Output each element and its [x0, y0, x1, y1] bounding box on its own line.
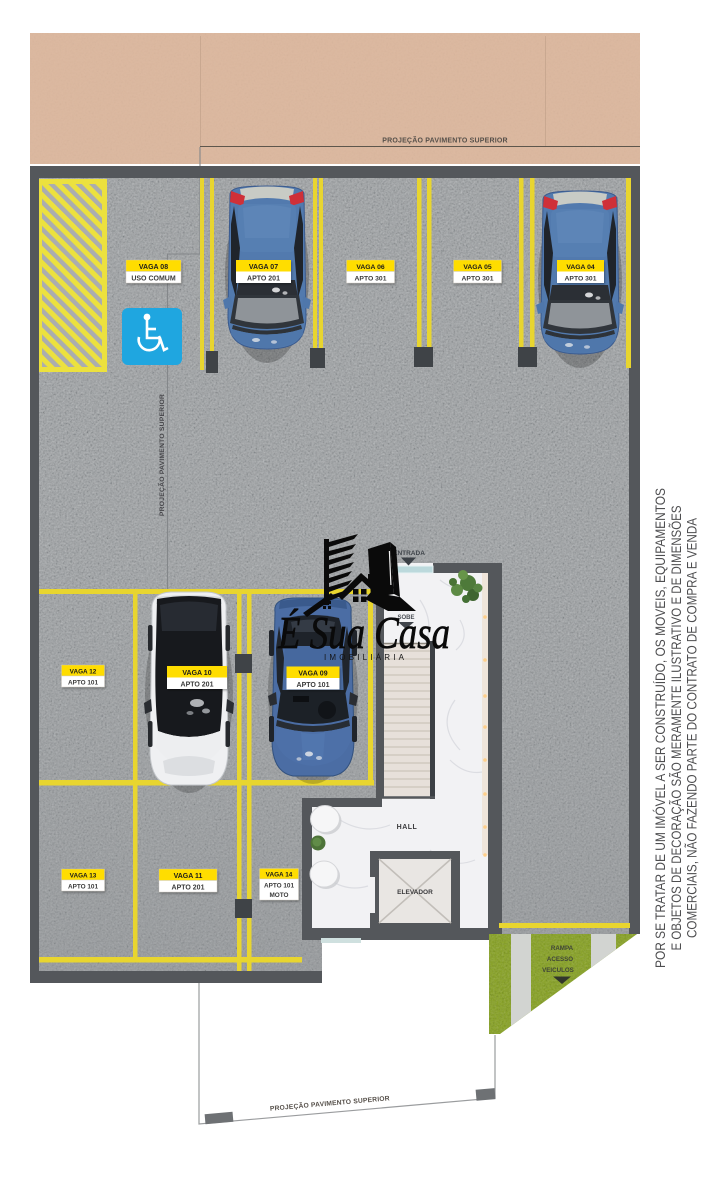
svg-text:VAGA 10: VAGA 10 — [182, 670, 211, 677]
svg-text:PROJEÇÃO PAVIMENTO SUPERIOR: PROJEÇÃO PAVIMENTO SUPERIOR — [157, 394, 166, 516]
svg-text:POR SE TRATAR DE UM IMÓVEL A S: POR SE TRATAR DE UM IMÓVEL A SER CONSTRU… — [652, 488, 668, 968]
svg-text:APTO 301: APTO 301 — [355, 275, 387, 282]
svg-text:APTO 301: APTO 301 — [462, 275, 494, 282]
svg-text:PROJEÇÃO PAVIMENTO SUPERIOR: PROJEÇÃO PAVIMENTO SUPERIOR — [382, 136, 508, 145]
svg-text:APTO 101: APTO 101 — [68, 680, 99, 687]
svg-text:VAGA 09: VAGA 09 — [298, 670, 327, 677]
svg-text:VAGA 13: VAGA 13 — [70, 873, 97, 880]
svg-text:APTO 201: APTO 201 — [181, 681, 214, 688]
svg-text:COMERCIAIS, NÃO FAZENDO PARTE: COMERCIAIS, NÃO FAZENDO PARTE DO CONTRAT… — [684, 517, 700, 938]
svg-text:VAGA 04: VAGA 04 — [566, 264, 595, 271]
svg-text:IMOBILIÁRIA: IMOBILIÁRIA — [324, 653, 405, 662]
svg-text:APTO 101: APTO 101 — [68, 884, 99, 891]
svg-text:VAGA 08: VAGA 08 — [139, 264, 168, 271]
svg-text:RAMPA: RAMPA — [551, 945, 574, 952]
svg-text:APTO 101: APTO 101 — [297, 682, 330, 689]
svg-text:VAGA 07: VAGA 07 — [249, 264, 278, 271]
svg-text:VAGA 06: VAGA 06 — [356, 264, 385, 271]
svg-text:ACESSO: ACESSO — [547, 956, 573, 963]
svg-text:USO COMUM: USO COMUM — [131, 275, 176, 282]
svg-text:VAGA 11: VAGA 11 — [174, 873, 203, 880]
svg-text:VAGA 14: VAGA 14 — [266, 872, 293, 879]
svg-text:APTO 101: APTO 101 — [264, 883, 295, 890]
svg-text:ELEVADOR: ELEVADOR — [397, 889, 433, 896]
svg-text:VAGA 05: VAGA 05 — [463, 264, 492, 271]
svg-text:ENTRADA: ENTRADA — [393, 550, 425, 557]
svg-text:VEICULOS: VEICULOS — [542, 967, 574, 974]
svg-text:HALL: HALL — [397, 824, 418, 831]
svg-text:APTO 201: APTO 201 — [172, 884, 205, 891]
svg-text:APTO 201: APTO 201 — [247, 275, 280, 282]
svg-text:APTO 301: APTO 301 — [565, 275, 597, 282]
svg-text:E OBJETOS DE DECORAÇÃO SÃO MER: E OBJETOS DE DECORAÇÃO SÃO MERAMENTE ILU… — [668, 506, 684, 951]
svg-text:MOTO: MOTO — [269, 892, 288, 899]
svg-text:É Sua Casa: É Sua Casa — [277, 607, 450, 658]
svg-text:VAGA 12: VAGA 12 — [70, 669, 97, 676]
